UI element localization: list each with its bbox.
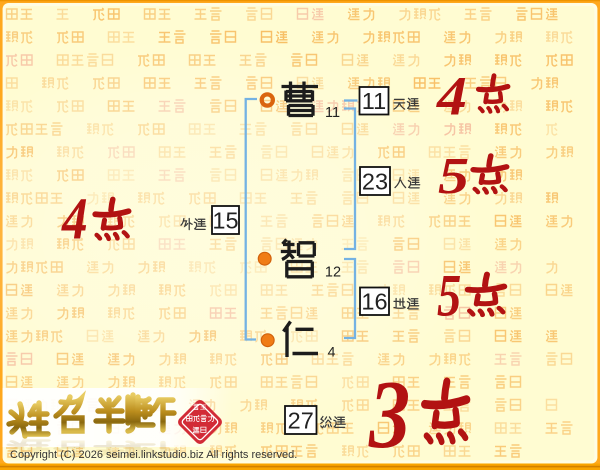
svg-text:3: 3	[368, 362, 410, 469]
svg-text:11: 11	[325, 105, 340, 121]
svg-text:4: 4	[328, 344, 336, 360]
svg-text:5: 5	[437, 261, 461, 328]
svg-text:23: 23	[362, 168, 388, 194]
svg-text:4: 4	[61, 186, 88, 251]
svg-text:4: 4	[436, 67, 467, 127]
svg-text:12: 12	[325, 265, 341, 281]
svg-text:15: 15	[212, 207, 238, 233]
svg-text:5: 5	[438, 148, 469, 205]
svg-text:11: 11	[362, 88, 386, 114]
svg-text:16: 16	[361, 289, 387, 315]
svg-text:Copyright (C) 2026 seimei.link: Copyright (C) 2026 seimei.linkstudio.biz…	[10, 449, 297, 461]
svg-text:27: 27	[288, 407, 314, 433]
